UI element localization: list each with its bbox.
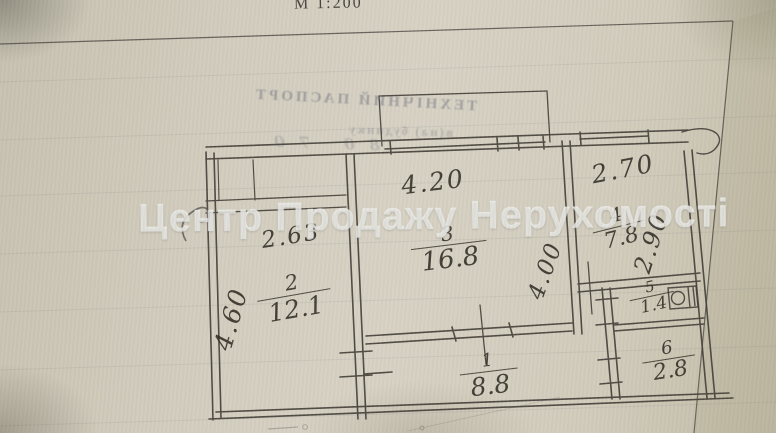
room-6-number: 6: [658, 339, 676, 359]
room-5-number: 5: [642, 278, 658, 295]
scale-label: М 1:200: [294, 0, 363, 14]
room-label-6: 6 2.8: [639, 336, 698, 387]
photographed-floorplan-page: ТЕХНІЧНИЙ ПАСПОРТ в(на) будинку 80 70 М …: [0, 0, 776, 433]
room-label-1: 1 8.8: [458, 349, 521, 402]
faint-bottom-scribbles: [268, 397, 560, 431]
room-2-number: 2: [281, 271, 302, 295]
room-1-number: 1: [479, 351, 497, 371]
watermark-text: Центр Продажу Нерухомості: [138, 191, 730, 241]
room-1-area: 8.8: [460, 368, 521, 402]
